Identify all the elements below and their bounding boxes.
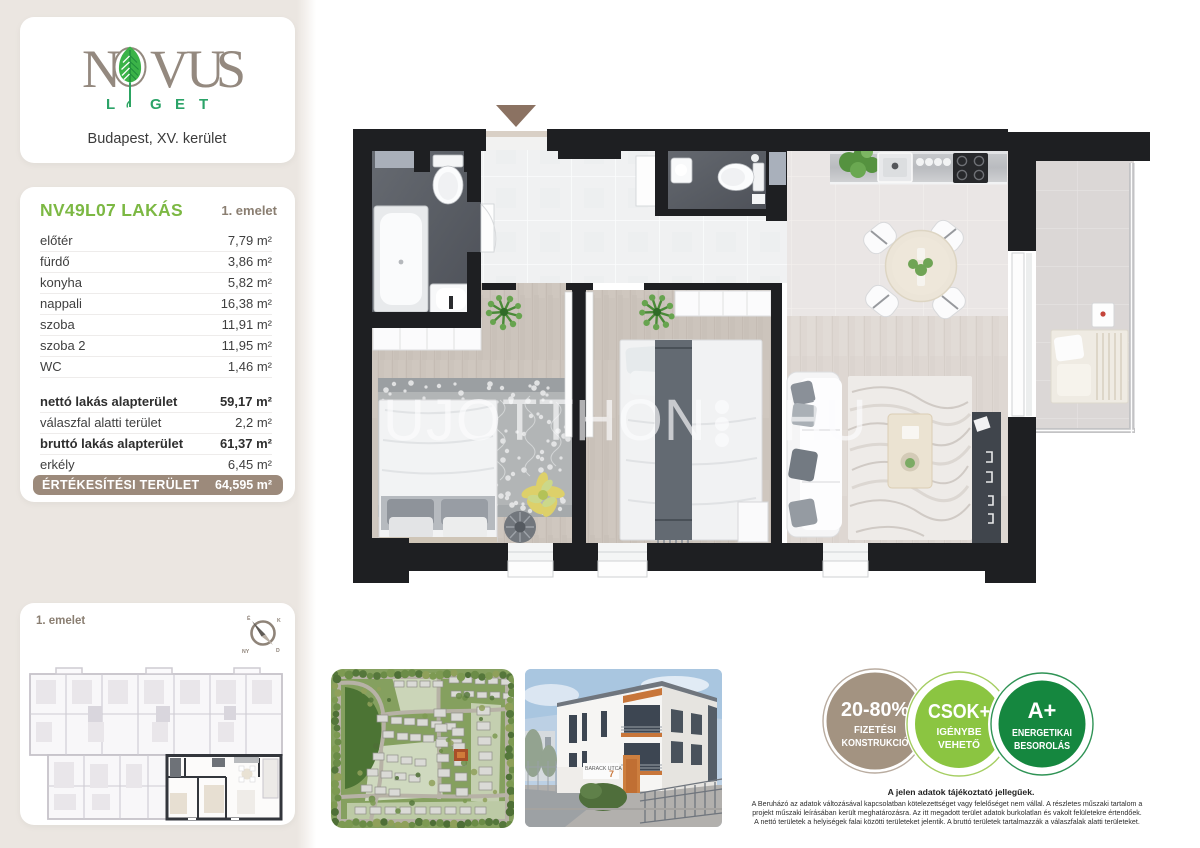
svg-text:VEHETŐ: VEHETŐ — [938, 738, 980, 751]
svg-text:L: L — [106, 96, 115, 113]
svg-text:E: E — [175, 96, 185, 113]
svg-text:D: D — [276, 648, 280, 654]
svg-text:É: É — [247, 614, 251, 622]
svg-text:A+: A+ — [1028, 698, 1057, 723]
svg-text:V: V — [150, 39, 189, 99]
svg-text:7: 7 — [609, 769, 614, 779]
svg-text:T: T — [199, 96, 208, 113]
svg-text:K: K — [277, 618, 281, 624]
svg-text:IGÉNYBE: IGÉNYBE — [937, 725, 982, 738]
svg-text:KONSTRUKCIÓ: KONSTRUKCIÓ — [842, 736, 909, 749]
svg-text:BARACK UTCA: BARACK UTCA — [585, 766, 622, 772]
svg-text:BESOROLÁS: BESOROLÁS — [1014, 739, 1070, 752]
svg-text:S: S — [216, 39, 246, 99]
svg-text:CSOK+: CSOK+ — [928, 701, 990, 723]
svg-text:Budapest, XV. kerület: Budapest, XV. kerület — [88, 131, 227, 147]
svg-text:NY: NY — [242, 649, 250, 655]
svg-text:20-80%: 20-80% — [841, 699, 909, 721]
svg-text:FIZETÉSI: FIZETÉSI — [854, 723, 896, 736]
svg-text:G: G — [150, 96, 162, 113]
svg-text:ENERGETIKAI: ENERGETIKAI — [1012, 728, 1072, 739]
